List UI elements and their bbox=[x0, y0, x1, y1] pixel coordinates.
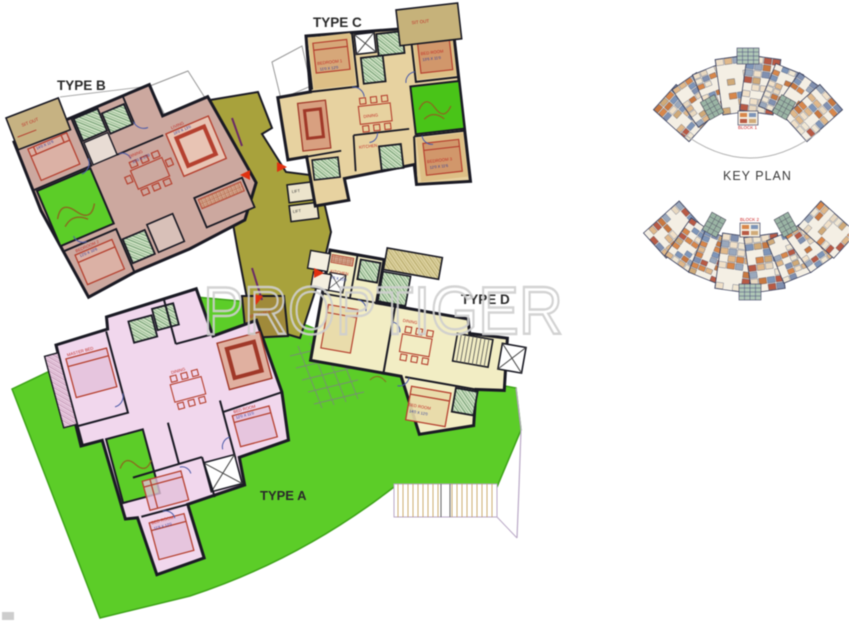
svg-text:BLOCK 1: BLOCK 1 bbox=[738, 125, 758, 130]
svg-text:PROPTIGER: PROPTIGER bbox=[203, 273, 563, 349]
svg-text:TYPE B: TYPE B bbox=[57, 78, 106, 93]
svg-text:LIFT: LIFT bbox=[293, 208, 302, 214]
svg-text:TYPE C: TYPE C bbox=[313, 15, 362, 30]
svg-text:TYPE A: TYPE A bbox=[260, 488, 307, 503]
svg-text:LIFT: LIFT bbox=[292, 188, 301, 194]
svg-text:KEY PLAN: KEY PLAN bbox=[723, 169, 792, 183]
svg-text:BLOCK 2: BLOCK 2 bbox=[740, 217, 760, 222]
